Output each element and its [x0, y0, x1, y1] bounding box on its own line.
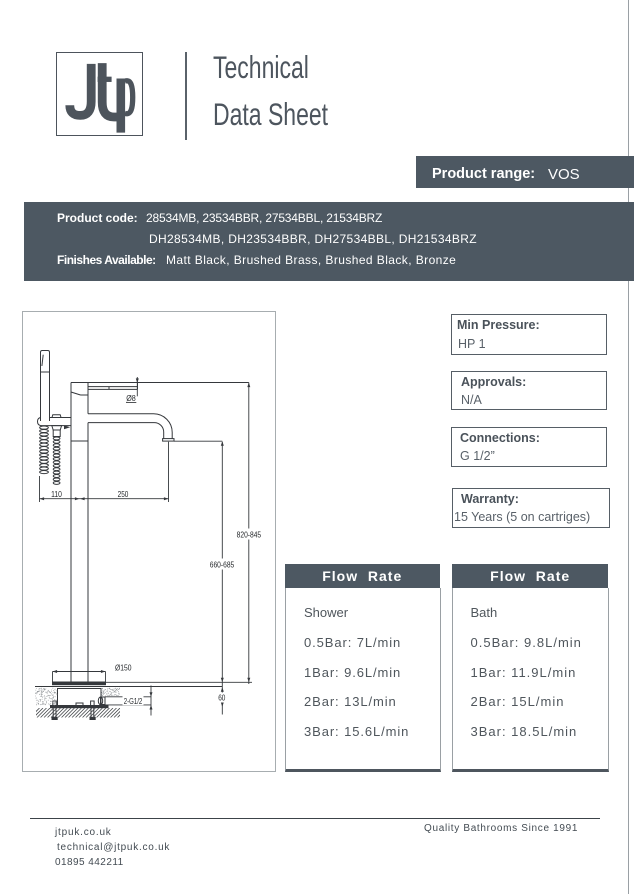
- svg-text:820-845: 820-845: [237, 529, 262, 539]
- svg-text:2-G1/2: 2-G1/2: [124, 696, 143, 706]
- svg-text:110: 110: [51, 489, 62, 499]
- svg-text:60: 60: [218, 693, 225, 703]
- svg-text:250: 250: [118, 489, 129, 499]
- svg-text:Ø8: Ø8: [126, 393, 136, 403]
- svg-text:660-685: 660-685: [210, 559, 235, 569]
- svg-text:Ø150: Ø150: [115, 663, 132, 673]
